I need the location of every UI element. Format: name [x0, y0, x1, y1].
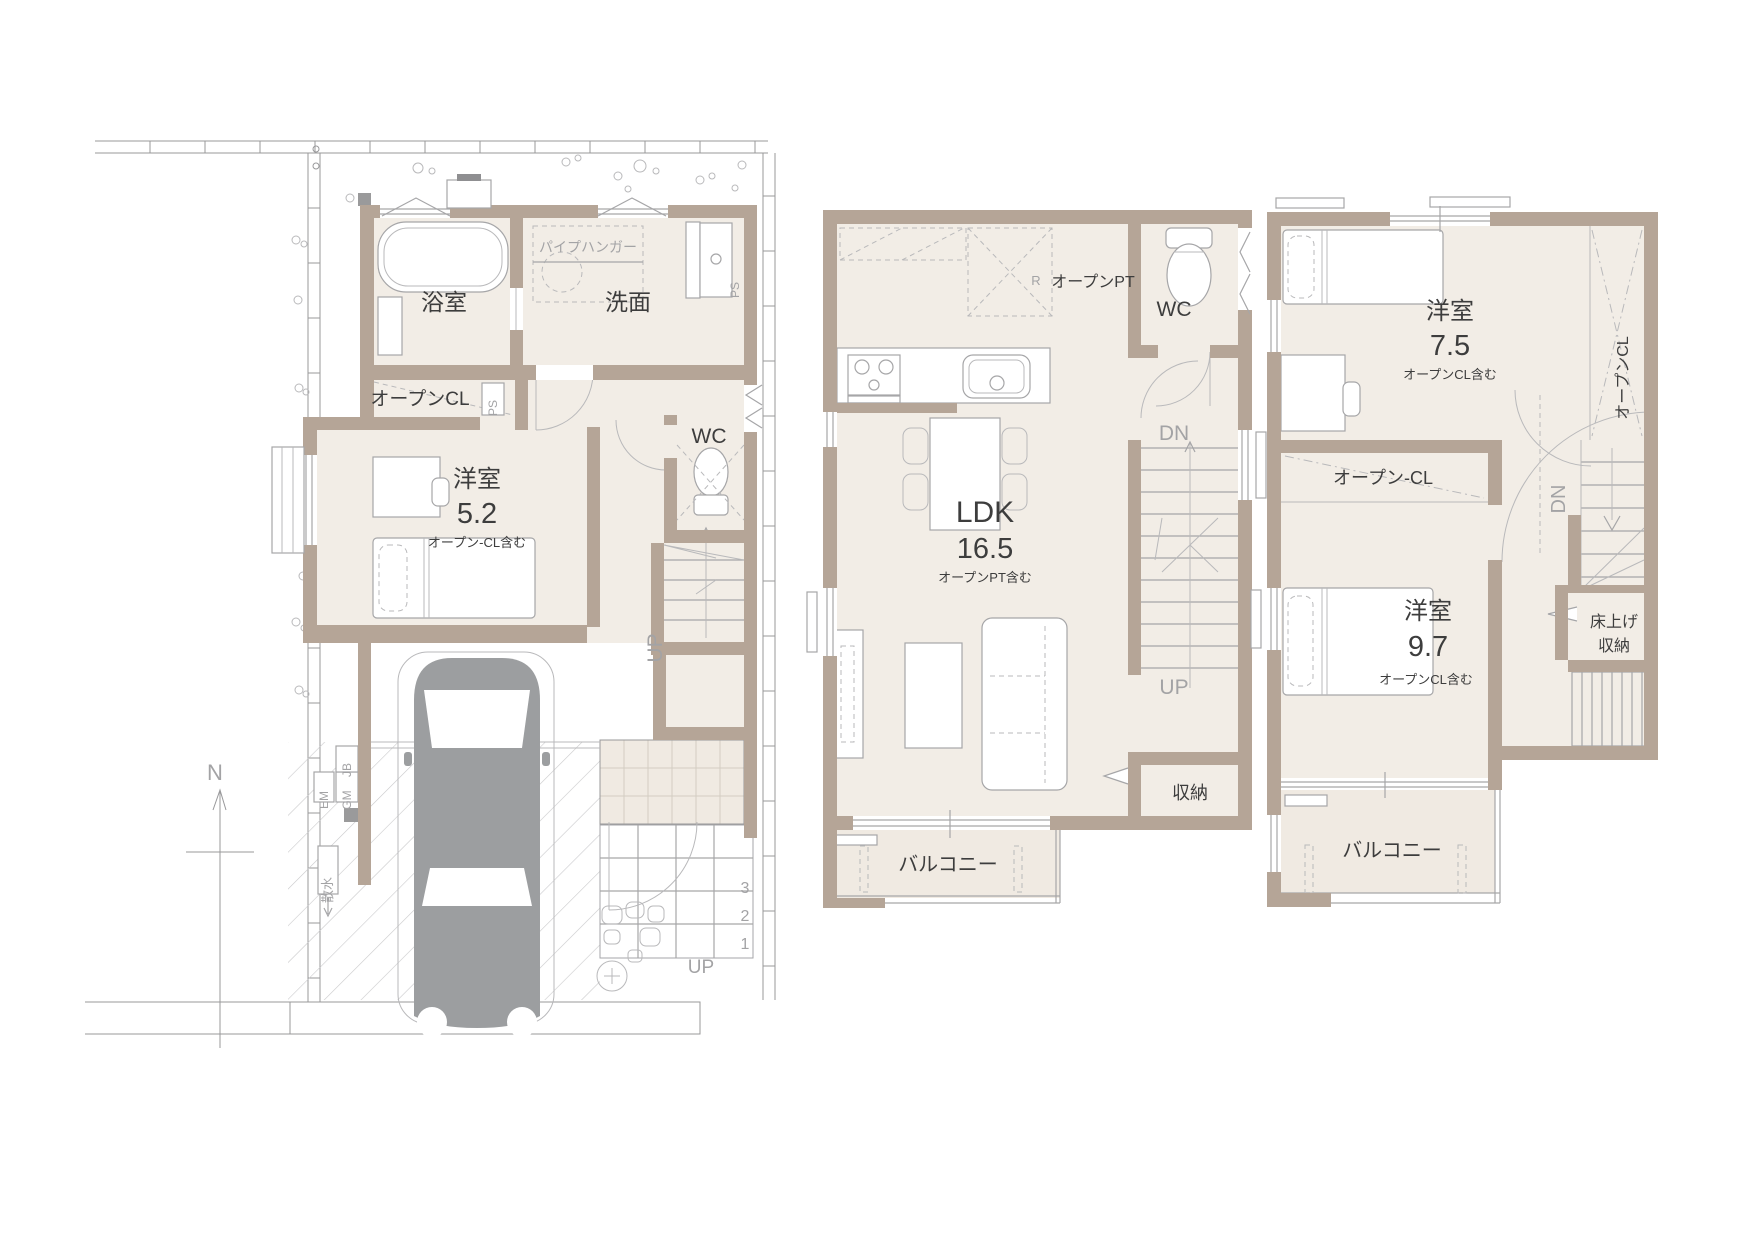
open-cl-side-label: オープンCL	[1614, 336, 1632, 420]
desk-icon-3f	[1281, 355, 1345, 431]
sprinkler-label: 散水	[320, 877, 335, 903]
room2-label: 洋室	[1404, 598, 1452, 625]
meter-gm-label: GM	[340, 790, 354, 809]
room2-note: オープンCL含む	[1379, 672, 1473, 687]
step-3: 3	[741, 880, 750, 897]
sofa-icon	[982, 618, 1067, 790]
wc-label-2f: WC	[1157, 298, 1192, 321]
bedroom-size: 5.2	[457, 498, 497, 530]
bedroom-label: 洋室	[453, 466, 501, 493]
meter-jb-label: JB	[340, 763, 354, 777]
ldk-label: LDK	[956, 496, 1014, 529]
washer-icon	[686, 222, 732, 298]
bed-icon-3f-1	[1283, 230, 1443, 304]
bed-icon	[373, 538, 535, 618]
open-cl-label: オープンCL	[370, 388, 469, 410]
chair-icon-3f	[1343, 382, 1360, 416]
room1-size: 7.5	[1430, 330, 1470, 362]
bath-label: 浴室	[421, 289, 467, 315]
floor1-plan: 浴室 洗面 パイプハンガー オープンCL PS PS 洋室 5.2 オープン-C…	[85, 141, 775, 1037]
water-heater-icon	[447, 180, 491, 208]
entrance-up-label: UP	[688, 957, 714, 978]
step-2: 2	[741, 908, 750, 925]
balcony-label-3f: バルコニー	[1342, 840, 1442, 862]
dn-label-3f: DN	[1548, 485, 1570, 514]
toilet-icon-2f	[1166, 228, 1212, 306]
bathtub-icon	[378, 222, 508, 292]
coffee-table-icon	[905, 643, 962, 748]
washroom-label: 洗面	[605, 289, 651, 315]
shutter-box-icon	[272, 447, 304, 553]
ldk-note: オープンPT含む	[938, 570, 1032, 585]
car-icon	[398, 652, 554, 1037]
stair-up-label-1f: UP	[644, 633, 667, 662]
tv-board-icon	[835, 630, 863, 758]
storage-label-2f: 収納	[1172, 783, 1208, 803]
room1-label: 洋室	[1426, 298, 1474, 325]
floorplan-page: 浴室 洗面 パイプハンガー オープンCL PS PS 洋室 5.2 オープン-C…	[0, 0, 1754, 1240]
north-label: N	[207, 760, 223, 785]
wc-label-1f: WC	[692, 425, 727, 448]
pipe-hanger-label: パイプハンガー	[539, 239, 637, 255]
kitchen-counter	[837, 348, 1050, 403]
balcony-label-2f: バルコニー	[898, 854, 998, 876]
open-pt-label: オープンPT	[1051, 273, 1135, 291]
room1-note: オープンCL含む	[1403, 367, 1497, 382]
room2-size: 9.7	[1408, 631, 1448, 663]
ldk-size: 16.5	[957, 533, 1013, 565]
north-indicator: N	[186, 760, 254, 1048]
raised-storage-label-1: 床上げ	[1590, 613, 1638, 631]
dn-label-2f: DN	[1159, 422, 1189, 445]
step-1: 1	[741, 936, 750, 953]
chair-icon	[432, 478, 449, 506]
desk-icon	[373, 457, 440, 517]
ps-washroom-label: PS	[728, 282, 742, 298]
floorplan-drawing: 浴室 洗面 パイプハンガー オープンCL PS PS 洋室 5.2 オープン-C…	[0, 0, 1754, 1240]
bath-stool-icon	[378, 297, 402, 355]
up-label-2f: UP	[1159, 676, 1188, 699]
open-cl-band-label: オープン-CL	[1333, 468, 1433, 488]
ps-shaft-label: PS	[486, 400, 500, 416]
fridge-label: R	[1031, 273, 1040, 288]
raised-storage-label-2: 収納	[1598, 637, 1630, 655]
floor2-plan: R オープンPT WC DN LDK 16.5 オープンPT含む UP 収納 バ…	[807, 210, 1266, 908]
floor3-plan: 洋室 7.5 オープンCL含む オープンCL オープン-CL 洋室 9.7 オー…	[1251, 197, 1658, 907]
bedroom-note: オープン-CL含む	[428, 535, 526, 550]
meter-em-label: EM	[317, 791, 331, 809]
